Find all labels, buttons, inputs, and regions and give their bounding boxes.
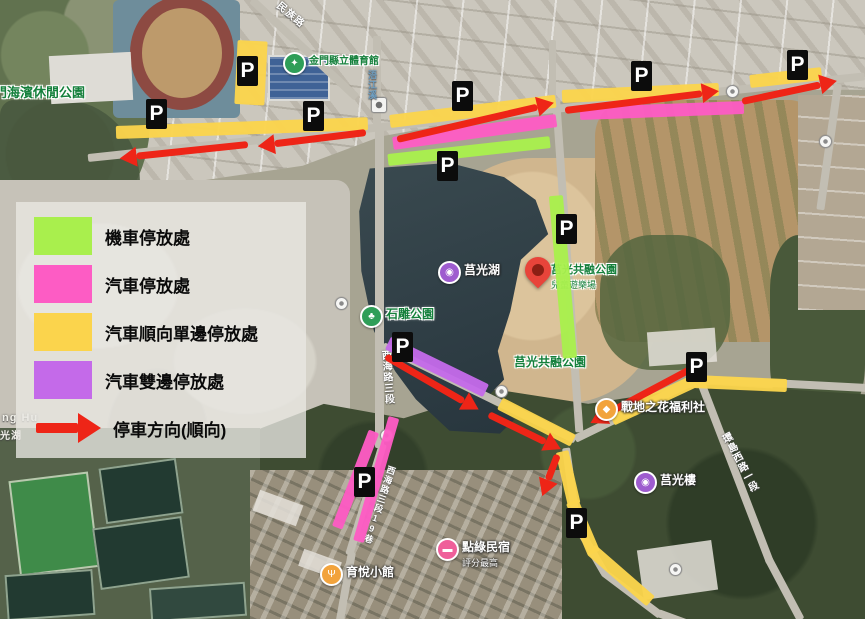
road-junction-icon — [669, 563, 682, 576]
road-junction-icon — [495, 385, 508, 398]
camera-icon: ◉ — [634, 471, 657, 494]
legend-panel: 機車停放處 汽車停放處 汽車順向單邊停放處 汽車雙邊停放處 停車方向(順向) — [16, 202, 306, 458]
parking-p-marker: P — [787, 50, 808, 80]
poi-yuyue-restaurant[interactable]: Ψ育悅小館 — [320, 563, 394, 586]
legend-item-car-parking: 汽車停放處 — [16, 260, 306, 308]
restaurant-icon: Ψ — [320, 563, 343, 586]
legend-item-parking-direction: 停車方向(順向) — [16, 404, 306, 452]
poi-label: 門海濱休閒公園 — [0, 82, 85, 101]
parking-p-marker: P — [556, 214, 577, 244]
legend-swatch-car-oneway — [34, 313, 92, 351]
stadium-running-track — [130, 0, 234, 110]
parking-p-marker: P — [631, 61, 652, 91]
poi-sublabel: 評分最高 — [462, 556, 510, 569]
tree-icon: ♣ — [360, 305, 383, 328]
poi-dianlv-bnb[interactable]: ▬點綠民宿評分最高 — [436, 538, 510, 569]
sports-icon: ✦ — [283, 52, 306, 75]
poi-label: 莒光樓 — [660, 471, 696, 488]
road-junction-icon — [819, 135, 832, 148]
legend-label: 停車方向(順向) — [113, 416, 226, 441]
satellite-village-area — [250, 470, 562, 619]
legend-swatch-motorcycle — [34, 217, 92, 255]
road-junction-icon — [726, 85, 739, 98]
parking-p-marker: P — [452, 81, 473, 111]
legend-label: 汽車停放處 — [105, 272, 190, 297]
legend-label: 機車停放處 — [105, 224, 190, 249]
parking-p-marker: P — [566, 508, 587, 538]
poi-county-stadium[interactable]: ✦金門縣立體育館 — [283, 52, 379, 75]
legend-swatch-car — [34, 265, 92, 303]
legend-item-car-both-sides: 汽車雙邊停放處 — [16, 356, 306, 404]
legend-swatch-car-both-sides — [34, 361, 92, 399]
direction-arrow-icon — [34, 413, 100, 443]
road-north-spur — [549, 40, 556, 100]
poi-seaside-leisure-park[interactable]: 門海濱休閒公園 — [0, 82, 85, 101]
parking-p-marker: P — [686, 352, 707, 382]
parking-p-marker: P — [392, 332, 413, 362]
legend-item-car-oneway-single-side: 汽車順向單邊停放處 — [16, 308, 306, 356]
fishpond — [5, 569, 96, 619]
poi-stone-sculpture-park[interactable]: ♣石雕公園 — [360, 305, 434, 328]
satellite-green-field — [8, 471, 99, 576]
poi-juguang-lake[interactable]: ◉莒光湖 — [438, 261, 500, 284]
legend-label: 汽車順向單邊停放處 — [105, 320, 258, 345]
fishpond — [98, 458, 183, 524]
fishpond — [149, 582, 247, 619]
fishpond — [92, 516, 190, 590]
map-canvas[interactable]: 機車停放處 汽車停放處 汽車順向單邊停放處 汽車雙邊停放處 停車方向(順向) P… — [0, 0, 865, 619]
bed-icon: ▬ — [436, 538, 459, 561]
poi-label: 育悅小館 — [346, 563, 394, 580]
poi-label: 金門縣立體育館 — [309, 52, 379, 67]
parking-p-marker: P — [437, 151, 458, 181]
poi-label: 莒光湖 — [464, 261, 500, 278]
poi-battlefield-flower-welfare-shop[interactable]: ◆戰地之花福利社 — [595, 398, 705, 421]
road-junction-icon — [335, 297, 348, 310]
camera-icon: ◉ — [438, 261, 461, 284]
poi-juguang-tower[interactable]: ◉莒光樓 — [634, 471, 696, 494]
poi-label: 戰地之花福利社 — [621, 398, 705, 415]
poi-label: 石雕公園 — [386, 305, 434, 322]
parking-p-marker: P — [237, 56, 258, 86]
parking-p-marker: P — [146, 99, 167, 129]
parking-p-marker: P — [303, 101, 324, 131]
shop-icon: ◆ — [595, 398, 618, 421]
parking-p-marker: P — [354, 467, 375, 497]
legend-label: 汽車雙邊停放處 — [105, 368, 224, 393]
poi-label: 點綠民宿 — [462, 538, 510, 555]
legend-item-motorcycle-parking: 機車停放處 — [16, 212, 306, 260]
